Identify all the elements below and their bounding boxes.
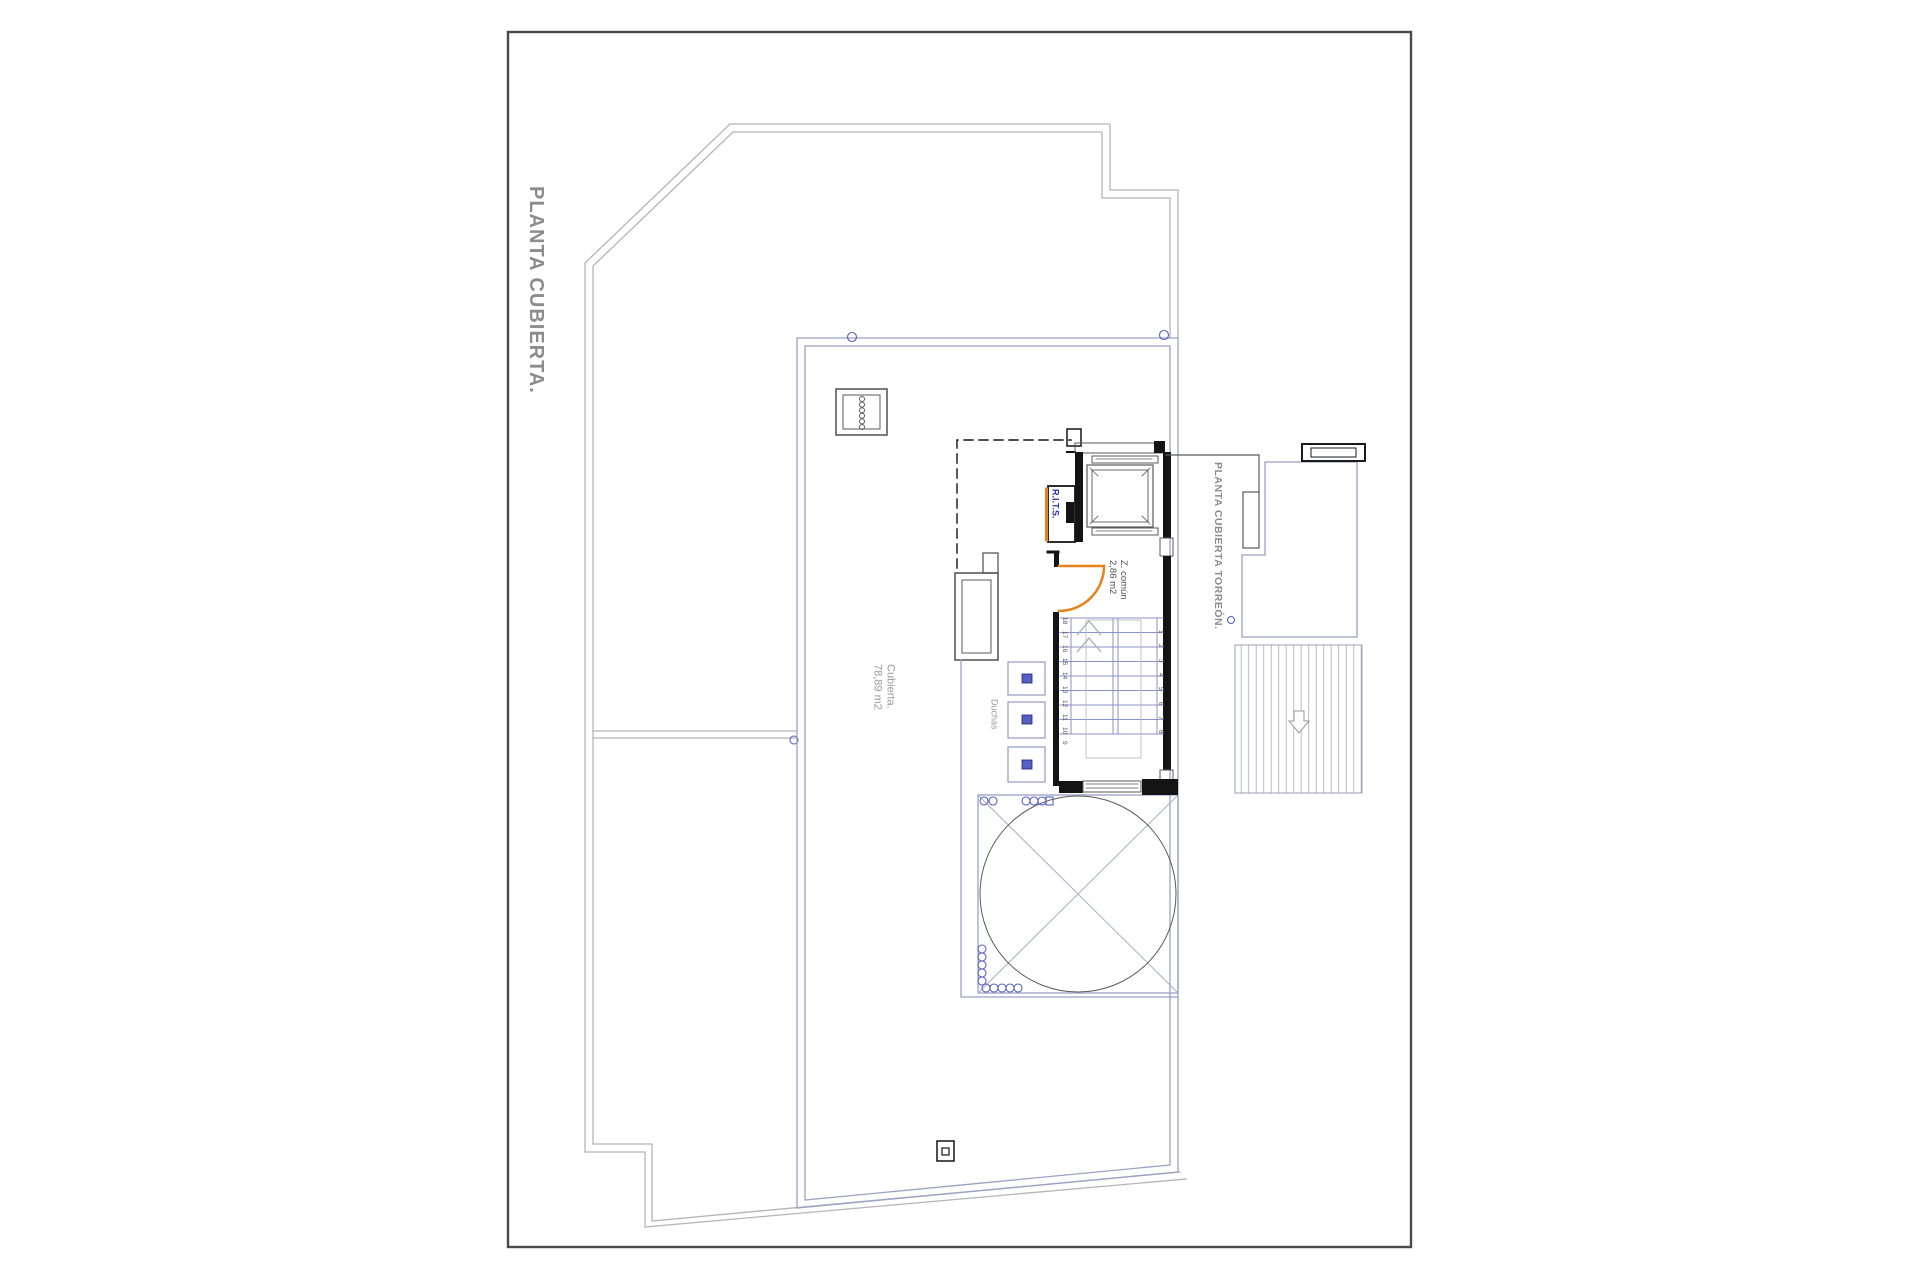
cubierta-name: Cubierta. xyxy=(884,664,897,710)
water-tank-room xyxy=(978,795,1178,993)
sheet-title: PLANTA CUBIERTA. xyxy=(524,186,547,394)
rits-label: R.I.T.S. xyxy=(1050,489,1060,519)
pipe-fittings xyxy=(978,797,1053,992)
stair-step-number: 18 xyxy=(1061,617,1068,624)
stair-step-number: 5 xyxy=(1157,687,1164,691)
stair-step-number: 3 xyxy=(1157,659,1164,663)
torreon-title: PLANTA CUBIERTA TORREÓN. xyxy=(1212,462,1224,630)
vent-louvre xyxy=(1083,781,1141,792)
stair-step-number: 7 xyxy=(1157,716,1164,720)
stair-step-number: 16 xyxy=(1061,645,1068,652)
stair-wall xyxy=(1053,612,1059,786)
stair-step-number: 4 xyxy=(1157,673,1164,677)
elevator-car xyxy=(1087,456,1158,535)
main-terrace-outline xyxy=(797,331,1178,1209)
stair-step-number: 8 xyxy=(1157,730,1164,734)
core-walls xyxy=(1048,429,1178,795)
stair-step-number: 12 xyxy=(1061,700,1068,707)
stair-step-number: 6 xyxy=(1157,702,1164,706)
drawing-sheet: PLANTA CUBIERTA. PLANTA CUBIERTA TORREÓN… xyxy=(0,0,1920,1280)
roof-drain xyxy=(937,1141,954,1161)
z-comun-name: Z. común xyxy=(1117,560,1128,600)
chimney-vent xyxy=(955,553,998,660)
sheet-border xyxy=(508,32,1411,1247)
stair-step-number: 14 xyxy=(1061,672,1068,679)
shower-boxes xyxy=(1008,662,1045,782)
floor-plan-drawing xyxy=(0,0,1920,1280)
stair-step-number: 15 xyxy=(1061,658,1068,665)
roof-grille xyxy=(836,389,887,435)
torreon-roof xyxy=(1166,444,1365,793)
duchas-label: Duchas xyxy=(989,699,999,730)
stair-step-number: 11 xyxy=(1061,714,1068,721)
staircase xyxy=(1060,618,1163,758)
edge-fitting xyxy=(848,333,857,342)
cubierta-area: 78,89 m2 xyxy=(871,664,884,710)
left-terrace-divider xyxy=(593,731,798,744)
stair-step-number: 13 xyxy=(1061,686,1068,693)
stair-step-number: 17 xyxy=(1061,631,1068,638)
stair-step-number: 9 xyxy=(1061,741,1068,745)
elevator-shaft-wall xyxy=(1075,452,1083,542)
z-comun-label: Z. común 2,86 m2 xyxy=(1106,560,1128,600)
cross-bracing xyxy=(978,795,1178,993)
stair-step-number: 1 xyxy=(1157,630,1164,634)
z-comun-area: 2,86 m2 xyxy=(1106,560,1117,600)
cubierta-area-label: Cubierta. 78,89 m2 xyxy=(871,664,896,710)
stair-step-number: 10 xyxy=(1061,727,1068,734)
door-swing xyxy=(1059,566,1104,611)
stair-step-number: 2 xyxy=(1157,644,1164,648)
